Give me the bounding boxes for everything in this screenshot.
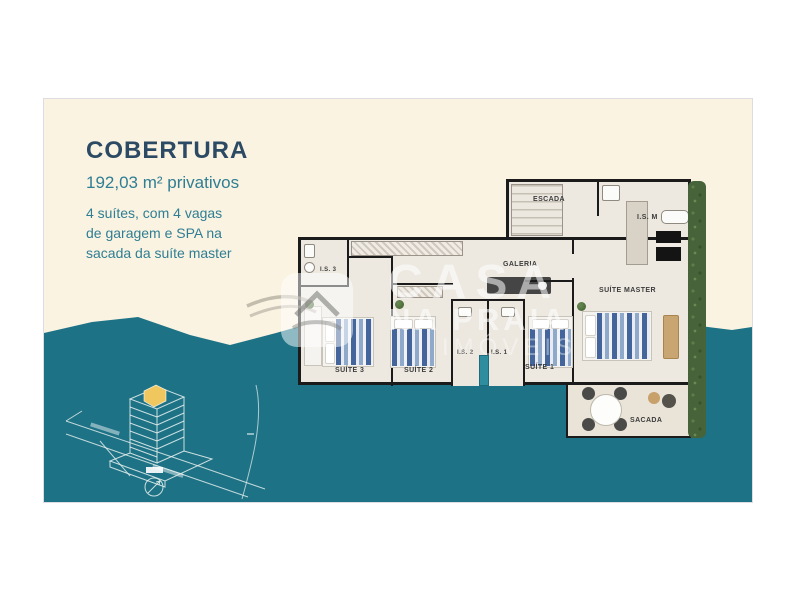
marketing-image: COBERTURA 192,03 m² privativos 4 suítes,… <box>0 0 800 600</box>
brand-text-mid: NA PRAIA <box>388 302 569 337</box>
brand-logo-icon <box>247 273 353 347</box>
brand-text-bottom: IMÓVEIS <box>442 334 577 361</box>
watermark: CASA NA PRAIA IMÓVEIS <box>44 99 752 502</box>
floorplan-card: COBERTURA 192,03 m² privativos 4 suítes,… <box>43 98 753 503</box>
